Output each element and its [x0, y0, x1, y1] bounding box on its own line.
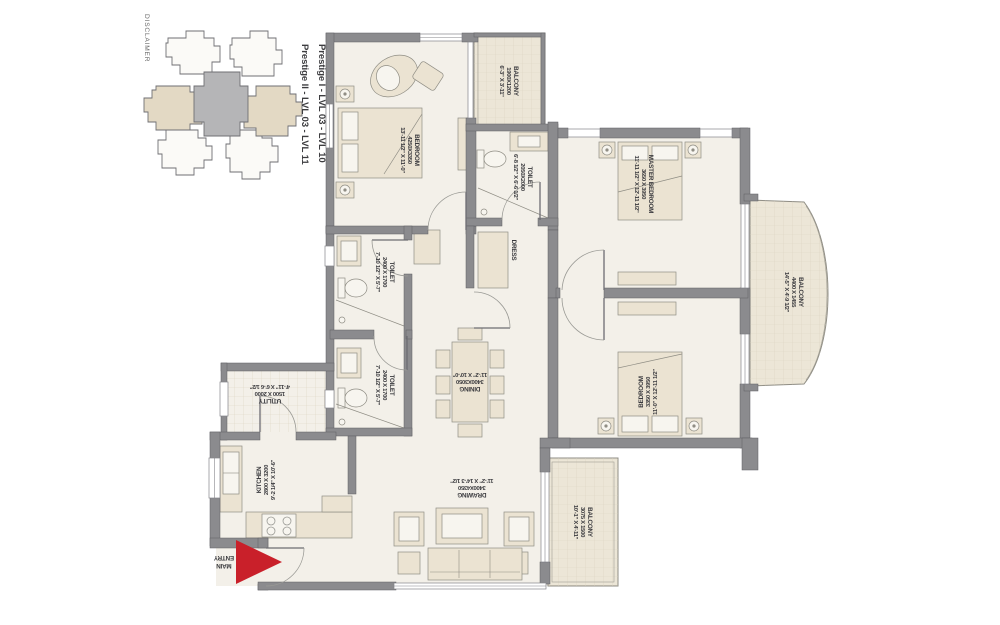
wardrobe: [618, 272, 676, 285]
master-bedroom-name: MASTER BEDROOM: [647, 155, 654, 213]
balcony-right-metric: 4400 X 1455: [790, 277, 796, 308]
window: [220, 382, 228, 416]
wardrobe: [618, 302, 676, 315]
shower-drain: [339, 317, 345, 323]
balcony-bottom-metric: 3075 X 1500: [579, 507, 585, 538]
balcony-top-name: BALCONY: [512, 66, 519, 97]
toilet-mid-imperial: 7'-10 1/2" X 5'-7": [374, 252, 380, 293]
kitchen-metric: 2800 X 3200: [264, 464, 270, 495]
shower-drain: [481, 209, 487, 215]
sofa: [428, 548, 522, 580]
toilet-low-metric: 2400 X 1700: [381, 370, 387, 401]
master-bedroom-imperial: 11'-11 1/2" X 12'-11 1/2": [633, 156, 639, 213]
floor-plan-sheet: BEDROOM 4250X3350 13'-11 1/2" X 11'-0" B…: [0, 0, 1000, 625]
label-balcony-right: BALCONY 4400 X 1455 14'-5" X 4'-9 1/2": [783, 272, 804, 313]
bedroom2-name: BEDROOM: [638, 376, 645, 407]
wc: [345, 279, 367, 297]
master-bedroom-metric: 3650 X 3950: [640, 169, 646, 200]
keyplan-caption-line1: Prestige I - LVL 03 - LVL 10: [316, 44, 327, 163]
drawing-name: DRAWING: [457, 491, 486, 498]
side-table: [398, 552, 420, 574]
floor-plan-drawing: BEDROOM 4250X3350 13'-11 1/2" X 11'-0" B…: [0, 0, 1000, 625]
dining-name: DINING: [459, 385, 480, 392]
toilet-mid-name: TOILET: [388, 261, 395, 282]
bedroom2-metric: 3350 X 3950: [646, 376, 652, 407]
keyplan-core: [194, 72, 248, 136]
kitchen-imperial: 9'-2 1/4" X 10'-6": [271, 459, 277, 500]
balcony-bottom-imperial: 10'-1" X 4'-11": [572, 505, 578, 540]
label-balcony-top: BALCONY 1900X1200 6'-3" X 3'-11": [498, 65, 519, 97]
dress-name: DRESS: [510, 240, 517, 261]
keyplan-unit: [226, 130, 278, 179]
keyplan-unit: [158, 130, 212, 175]
wc-tank: [338, 278, 345, 298]
shower-drain: [339, 419, 345, 425]
window: [325, 390, 334, 408]
bedroom2-imperial: 11'-0" X 12'-11 1/2": [653, 369, 659, 415]
drawing-imperial: 11'-2" X 14'-3 1/2": [450, 477, 493, 483]
utility-imperial: 4'-11" X 6'-6 1/2": [249, 383, 290, 389]
dining-metric: 3400X3050: [455, 378, 483, 384]
keyplan-unit: [166, 31, 220, 74]
utility-metric: 1500 X 2000: [254, 390, 285, 396]
wardrobe: [414, 230, 440, 264]
utility-name: UTILITY: [258, 397, 281, 404]
dress-wardrobe: [478, 232, 508, 288]
kitchen-name: KITCHEN: [256, 466, 263, 493]
bedroom1-name: BEDROOM: [413, 134, 420, 165]
drawing-metric: 3400X4350: [457, 484, 485, 490]
key-plan: [144, 31, 302, 179]
sliding-door: [468, 42, 473, 118]
keyplan-unit-highlight: [144, 86, 202, 130]
balcony-right-name: BALCONY: [797, 277, 804, 308]
hob: [262, 514, 296, 537]
fridge: [322, 496, 352, 512]
keyplan-unit-highlight: [244, 86, 302, 136]
keyplan-unit: [230, 31, 282, 76]
toilet-top-imperial: 6'-8 1/2" X 6'-6 1/2": [512, 154, 518, 200]
toilet-top-name: TOILET: [526, 166, 533, 187]
toilet-low-name: TOILET: [388, 374, 395, 395]
wc: [345, 389, 367, 407]
drawing-furniture: [394, 508, 534, 580]
keyplan-caption-line2: Prestige II - LVL 03 - LVL 11: [299, 44, 310, 165]
toilet-low-imperial: 7'-10 1/2" X 5'-7": [374, 365, 380, 406]
toilet-top-metric: 2050X2000: [519, 163, 525, 191]
main-entry-line2: ENTRY: [213, 554, 234, 561]
main-entry-line1: MAIN: [216, 562, 232, 569]
bedroom1-metric: 4250X3350: [406, 136, 412, 164]
balcony-right-imperial: 14'-5" X 4'-9 1/2": [783, 272, 789, 313]
balcony-bottom-name: BALCONY: [586, 507, 593, 538]
label-dress: DRESS: [510, 240, 517, 261]
balcony-top-imperial: 6'-3" X 3'-11": [498, 65, 504, 97]
balcony-top-metric: 1900X1200: [505, 67, 511, 95]
dining-imperial: 11'-2" X 10'-0": [452, 371, 487, 377]
bedroom1-imperial: 13'-11 1/2" X 11'-0": [399, 127, 405, 173]
wc: [484, 151, 506, 167]
label-balcony-bottom: BALCONY 3075 X 1500 10'-1" X 4'-11": [572, 505, 593, 540]
wc-tank: [477, 150, 484, 168]
window: [568, 129, 600, 137]
window: [325, 246, 334, 266]
toilet-mid-metric: 2400 X 1700: [381, 257, 387, 288]
disclaimer-text: DISCLAIMER: [143, 14, 150, 62]
window: [700, 129, 732, 137]
